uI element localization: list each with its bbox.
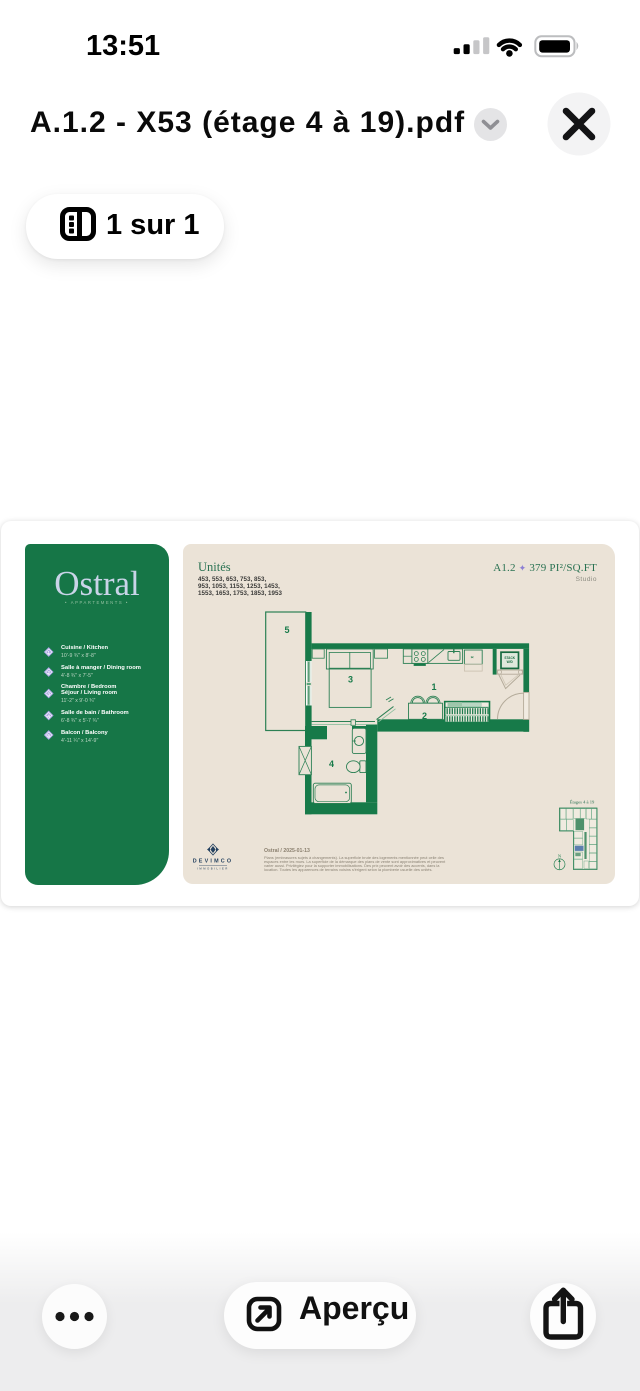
svg-text:W/D: W/D <box>507 660 514 664</box>
svg-text:4: 4 <box>329 759 334 769</box>
svg-text:Étages 4 à 19: Étages 4 à 19 <box>570 800 595 805</box>
svg-text:5: 5 <box>284 625 289 635</box>
svg-text:N: N <box>558 854 562 859</box>
svg-text:3: 3 <box>47 691 50 696</box>
svg-text:4: 4 <box>47 713 50 718</box>
svg-text:5: 5 <box>47 733 50 738</box>
svg-text:2: 2 <box>422 711 427 721</box>
svg-text:DEVIMCO: DEVIMCO <box>193 859 234 865</box>
svg-text:1: 1 <box>431 682 436 692</box>
svg-text:1: 1 <box>47 650 50 655</box>
svg-text:2: 2 <box>47 670 50 675</box>
svg-text:IMMOBILIER: IMMOBILIER <box>197 867 229 871</box>
svg-text:3: 3 <box>348 674 353 684</box>
